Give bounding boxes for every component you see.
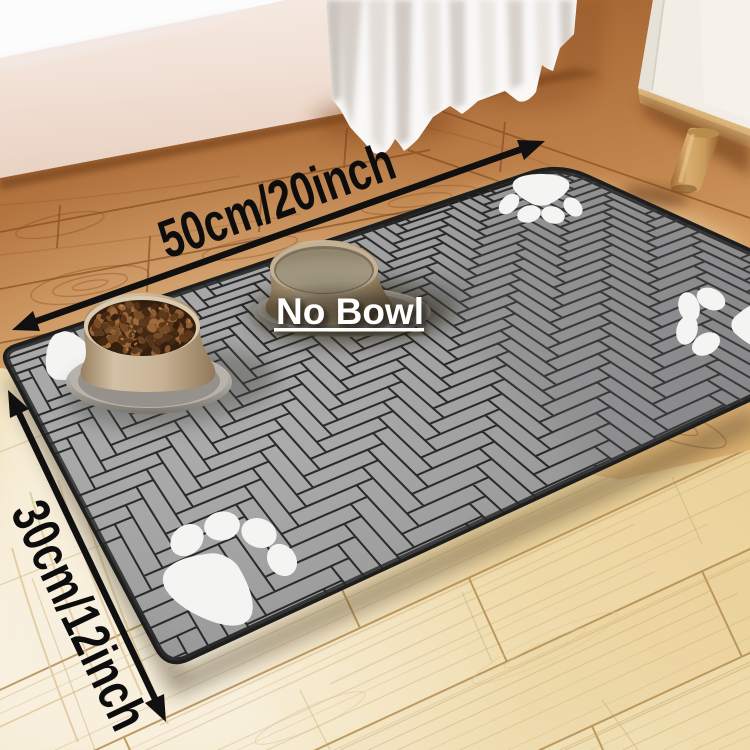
svg-text:No Bowl: No Bowl bbox=[276, 291, 424, 332]
